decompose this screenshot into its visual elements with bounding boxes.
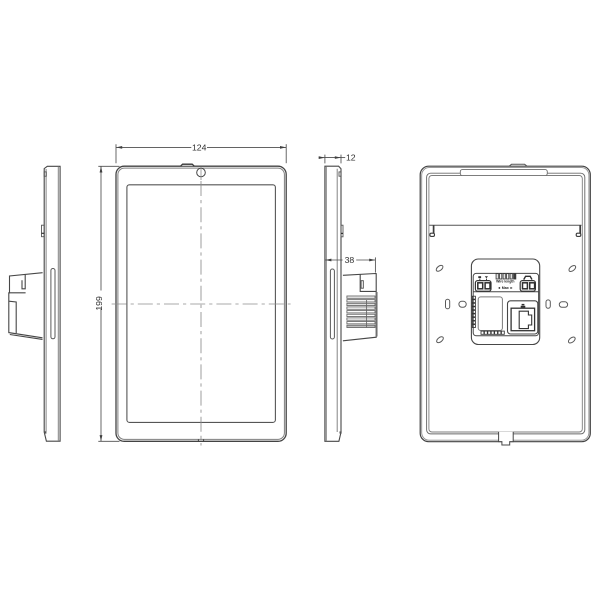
svg-text:124: 124 xyxy=(192,142,207,152)
svg-text:Wire length: Wire length xyxy=(496,280,514,284)
svg-text:199: 199 xyxy=(94,296,104,311)
svg-text:◄ Max ►: ◄ Max ► xyxy=(497,286,513,290)
svg-text:38: 38 xyxy=(345,255,355,265)
svg-text:12: 12 xyxy=(346,153,356,163)
